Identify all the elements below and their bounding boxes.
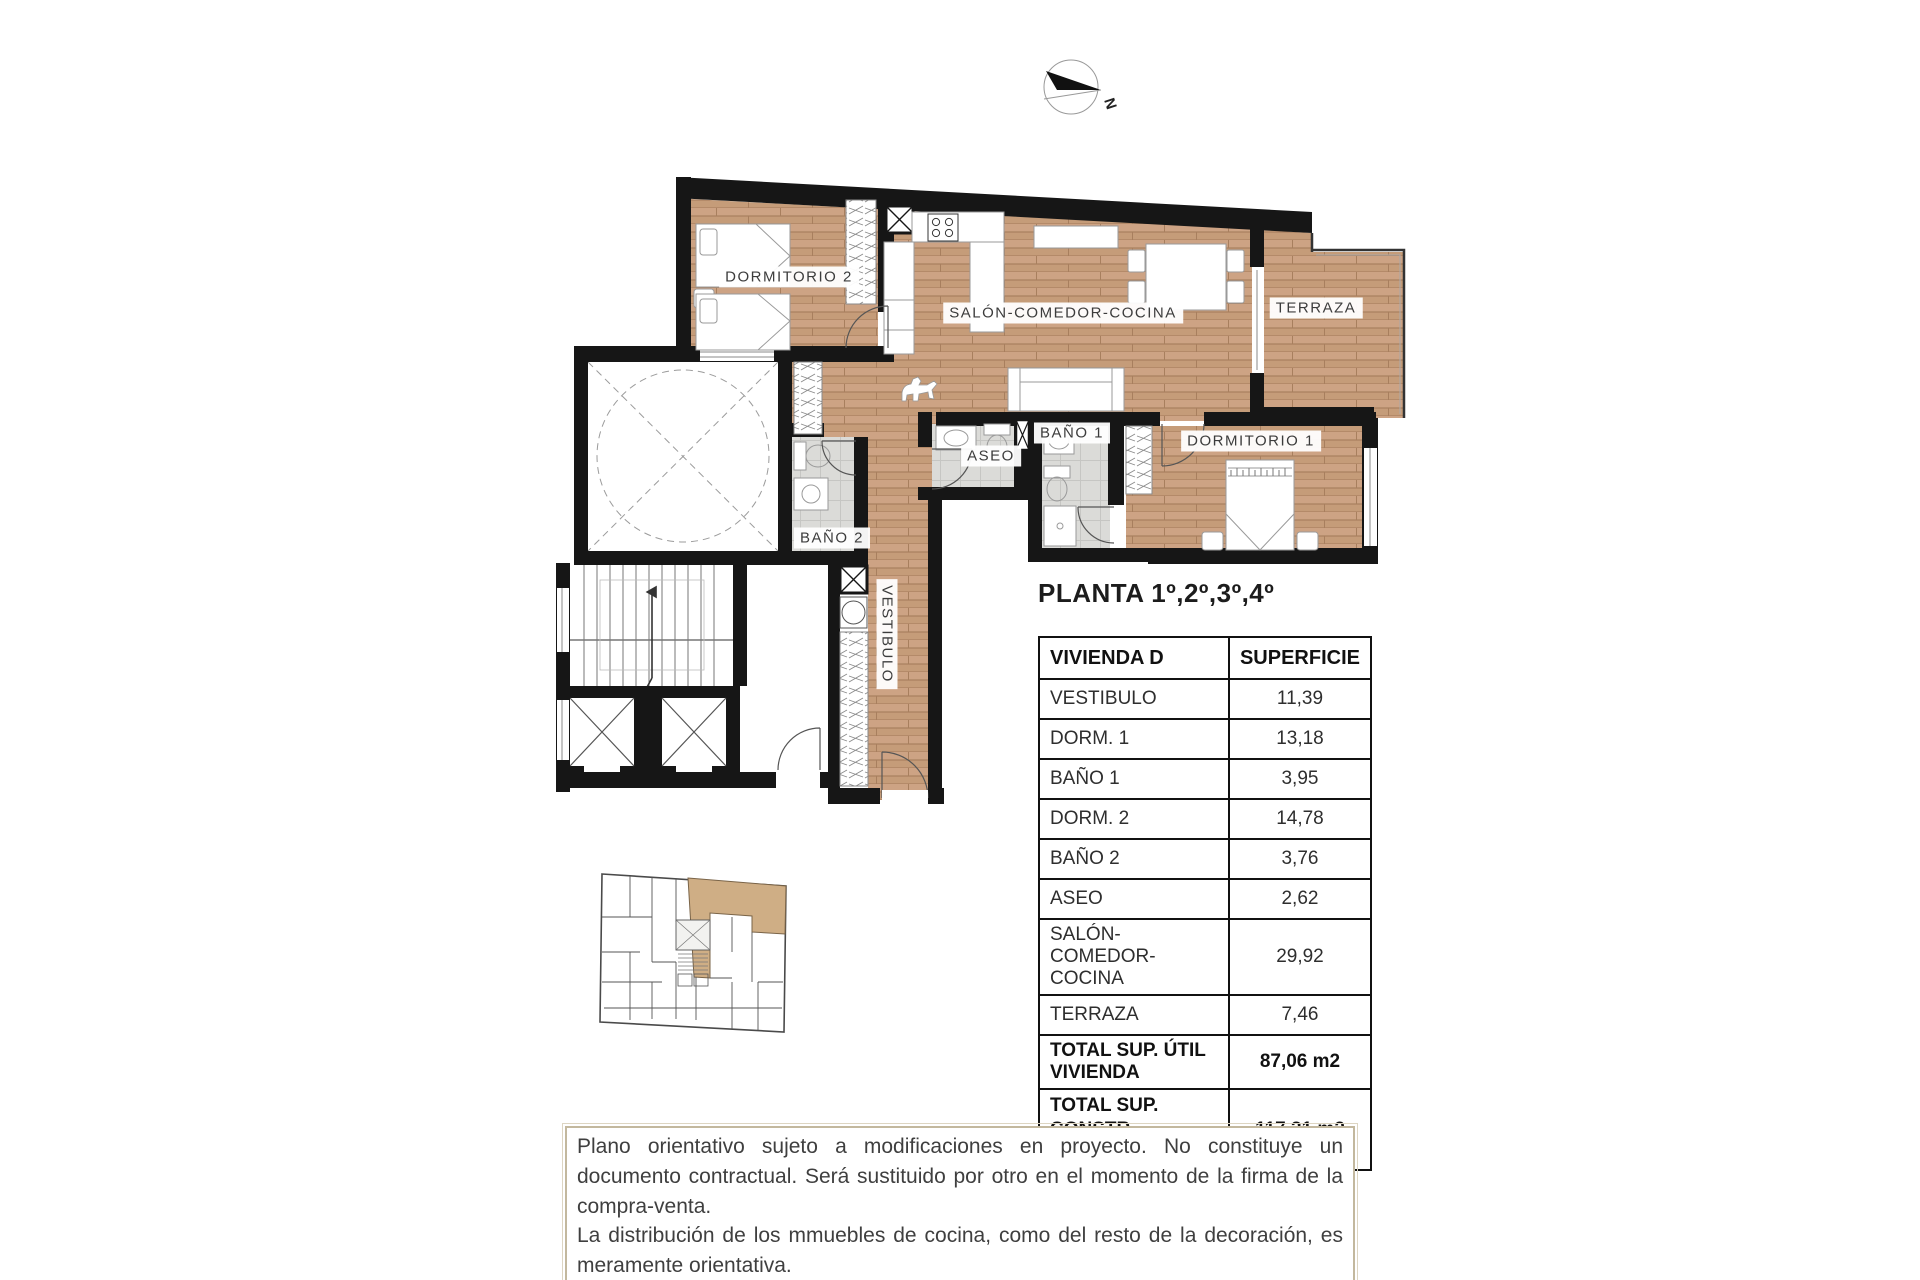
table-header-row: VIVIENDA D SUPERFICIE xyxy=(1039,637,1371,679)
row-value: 2,62 xyxy=(1229,879,1371,919)
room-label-bano-2: BAÑO 2 xyxy=(794,528,870,549)
floor-plan-drawing: N xyxy=(0,0,1920,1280)
row-label: SALÓN-COMEDOR-COCINA xyxy=(1039,919,1229,995)
table-row: DORM. 113,18 xyxy=(1039,719,1371,759)
entrance-threshold xyxy=(882,790,928,803)
room-label-dormitorio-2: DORMITORIO 2 xyxy=(719,267,859,288)
room-label-aseo: ASEO xyxy=(961,446,1021,467)
room-label-salon-comedor-cocina: SALÓN-COMEDOR-COCINA xyxy=(943,303,1183,324)
room-label-terraza: TERRAZA xyxy=(1270,298,1363,319)
table-row: BAÑO 23,76 xyxy=(1039,839,1371,879)
table-row: TERRAZA7,46 xyxy=(1039,995,1371,1035)
table-header-superficie: SUPERFICIE xyxy=(1229,637,1371,679)
table-total-util-row: TOTAL SUP. ÚTIL VIVIENDA 87,06 m2 xyxy=(1039,1035,1371,1089)
key-plan-minimap xyxy=(600,874,786,1032)
row-value: 29,92 xyxy=(1229,919,1371,995)
row-label: BAÑO 2 xyxy=(1039,839,1229,879)
water-heater-symbol xyxy=(840,597,867,628)
disclaimer-box: Plano orientativo sujeto a modificacione… xyxy=(565,1126,1355,1280)
total-label: TOTAL SUP. ÚTIL VIVIENDA xyxy=(1039,1035,1229,1089)
disclaimer-paragraph-2: La distribución de los mmuebles de cocin… xyxy=(577,1221,1343,1280)
row-value: 14,78 xyxy=(1229,799,1371,839)
elevator-symbol xyxy=(556,686,740,780)
svg-text:N: N xyxy=(1100,96,1120,112)
row-label: DORM. 2 xyxy=(1039,799,1229,839)
floor-plan-page: N xyxy=(0,0,1920,1280)
row-label: VESTIBULO xyxy=(1039,679,1229,719)
total-value: 87,06 m2 xyxy=(1229,1035,1371,1089)
patio-lightwell-symbol xyxy=(588,362,778,551)
row-label: BAÑO 1 xyxy=(1039,759,1229,799)
compass-north-icon: N xyxy=(1044,60,1120,114)
room-label-bano-1: BAÑO 1 xyxy=(1034,423,1110,444)
row-label: TERRAZA xyxy=(1039,995,1229,1035)
row-label: DORM. 1 xyxy=(1039,719,1229,759)
surface-table: VIVIENDA D SUPERFICIE VESTIBULO11,39 DOR… xyxy=(1038,636,1372,1171)
disclaimer-paragraph-1: Plano orientativo sujeto a modificacione… xyxy=(577,1132,1343,1221)
stairs-symbol xyxy=(570,563,733,700)
room-label-vestibulo: VESTIBULO xyxy=(877,579,898,689)
table-row: DORM. 214,78 xyxy=(1039,799,1371,839)
table-row: SALÓN-COMEDOR-COCINA29,92 xyxy=(1039,919,1371,995)
table-row: ASEO2,62 xyxy=(1039,879,1371,919)
row-value: 11,39 xyxy=(1229,679,1371,719)
row-value: 3,95 xyxy=(1229,759,1371,799)
plan-title: PLANTA 1º,2º,3º,4º xyxy=(1038,578,1274,609)
table-row: BAÑO 13,95 xyxy=(1039,759,1371,799)
room-label-dormitorio-1: DORMITORIO 1 xyxy=(1181,431,1321,452)
table-row: VESTIBULO11,39 xyxy=(1039,679,1371,719)
row-value: 13,18 xyxy=(1229,719,1371,759)
table-header-vivienda: VIVIENDA D xyxy=(1039,637,1229,679)
row-value: 3,76 xyxy=(1229,839,1371,879)
row-value: 7,46 xyxy=(1229,995,1371,1035)
row-label: ASEO xyxy=(1039,879,1229,919)
